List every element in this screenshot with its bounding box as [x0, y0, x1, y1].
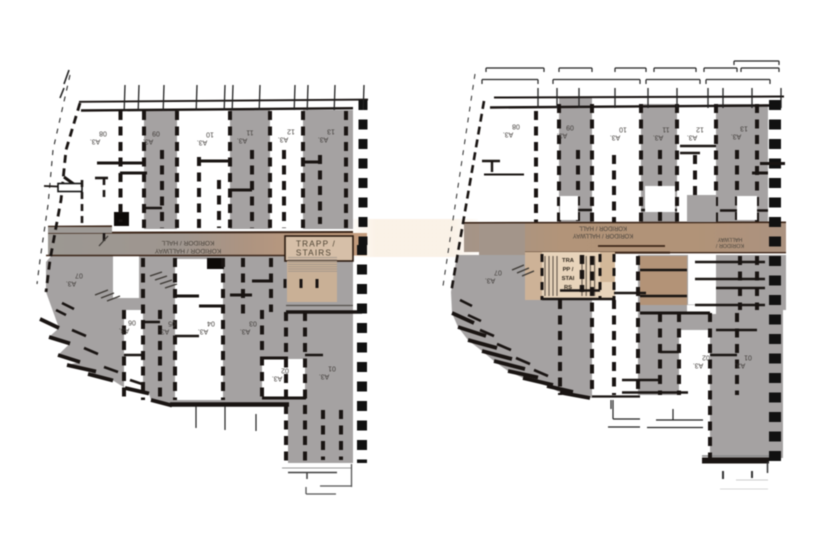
svg-text:13: 13	[740, 125, 748, 132]
svg-text:A3.: A3.	[653, 133, 664, 140]
svg-text:02: 02	[281, 367, 289, 374]
svg-text:A3.: A3.	[90, 137, 101, 144]
svg-text:11: 11	[246, 129, 253, 136]
svg-text:A3.: A3.	[198, 327, 209, 334]
svg-text:10: 10	[206, 131, 214, 138]
svg-text:01: 01	[744, 354, 752, 361]
svg-text:A3.: A3.	[693, 361, 704, 368]
svg-text:KORIDOR / HALLWAY: KORIDOR / HALLWAY	[154, 247, 221, 254]
svg-text:A3.: A3.	[485, 276, 496, 283]
svg-text:13: 13	[327, 128, 335, 135]
svg-text:08: 08	[99, 130, 107, 137]
svg-text:KORIDOR / HALL: KORIDOR / HALL	[161, 239, 214, 246]
svg-text:09: 09	[152, 130, 160, 137]
svg-text:A3.: A3.	[503, 130, 514, 137]
svg-text:A3.: A3.	[318, 135, 329, 142]
svg-text:10: 10	[619, 126, 627, 133]
svg-text:A3.: A3.	[272, 374, 283, 381]
svg-text:A3.: A3.	[143, 137, 154, 144]
svg-text:01: 01	[328, 365, 336, 372]
svg-text:07: 07	[75, 272, 83, 279]
svg-text:A3.: A3.	[237, 136, 248, 143]
svg-text:RS: RS	[564, 285, 572, 291]
svg-text:A3.: A3.	[197, 138, 208, 145]
svg-text:05: 05	[168, 320, 176, 327]
svg-text:A3.: A3.	[278, 135, 289, 142]
svg-text:02: 02	[702, 354, 710, 361]
svg-text:A3.: A3.	[557, 131, 568, 138]
svg-text:08: 08	[512, 123, 520, 130]
svg-text:A3.: A3.	[610, 133, 621, 140]
svg-text:STAI: STAI	[562, 276, 575, 282]
svg-text:KORIDOR / HALLWAY: KORIDOR / HALLWAY	[573, 232, 634, 238]
svg-text:PP /: PP /	[563, 267, 574, 273]
svg-text:A3.: A3.	[319, 372, 330, 379]
svg-text:04: 04	[207, 320, 215, 327]
svg-text:07: 07	[494, 269, 502, 276]
svg-text:11: 11	[662, 126, 669, 133]
svg-text:A3.: A3.	[159, 327, 170, 334]
svg-text:A3.: A3.	[119, 326, 130, 333]
svg-text:KORIDOR / HALL: KORIDOR / HALL	[578, 225, 627, 231]
svg-text:STAIRS: STAIRS	[296, 249, 332, 258]
svg-text:03: 03	[249, 320, 257, 327]
svg-text:12: 12	[287, 128, 295, 135]
svg-text:A3.: A3.	[731, 132, 742, 139]
svg-text:A3.: A3.	[735, 361, 746, 368]
svg-text:A3.: A3.	[66, 279, 77, 286]
svg-text:A3.: A3.	[240, 327, 251, 334]
svg-text:TRAPP /: TRAPP /	[296, 240, 336, 249]
svg-text:09: 09	[566, 124, 574, 131]
svg-text:06: 06	[128, 319, 136, 326]
svg-text:TRA: TRA	[562, 258, 575, 264]
svg-text:12: 12	[696, 126, 704, 133]
svg-text:HALLWAY: HALLWAY	[717, 236, 742, 242]
svg-text:A3.: A3.	[687, 133, 698, 140]
